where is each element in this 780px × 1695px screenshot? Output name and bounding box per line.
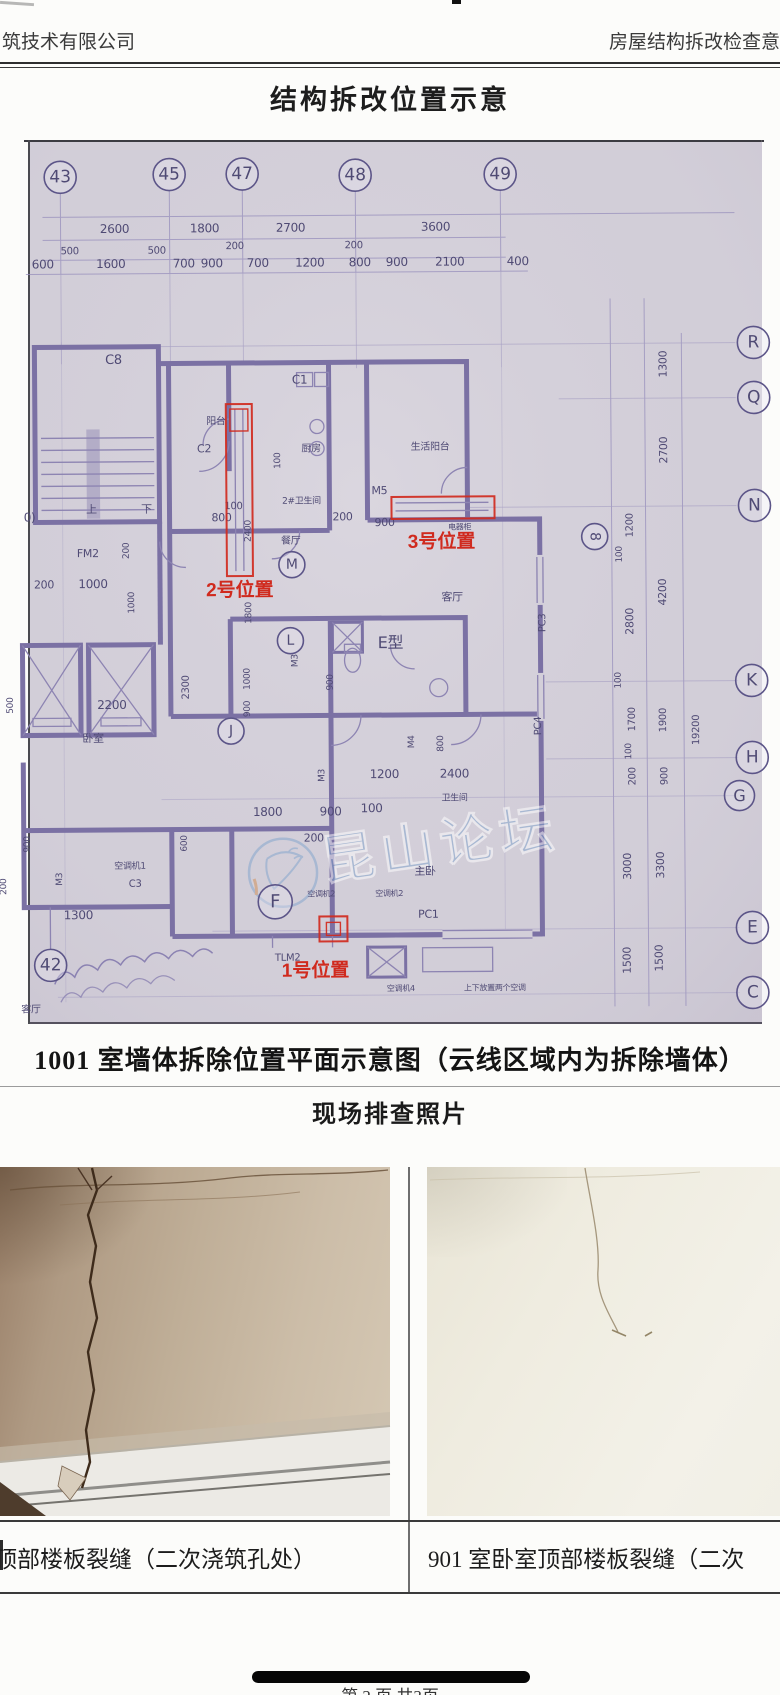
plan-label: 1300	[656, 350, 669, 377]
grid-bubble-label: 8	[587, 532, 603, 541]
plan-label: 1900	[658, 708, 669, 732]
plan-label: 1000	[243, 668, 253, 690]
plan-label: 生活阳台	[411, 440, 450, 453]
plan-label: 厨房	[301, 441, 321, 454]
floor-plan-figure: 昆山论坛 4345474849RQNKHGECMLJF8422600180027…	[0, 140, 780, 1045]
photo-shading	[0, 1167, 160, 1287]
plan-label: 200	[304, 831, 324, 844]
plan-label: 1700	[627, 707, 638, 731]
plan-label: 2300	[181, 675, 192, 699]
plan-label: 上下放置两个空调	[464, 982, 526, 992]
plan-label: 500	[61, 246, 79, 257]
plan-label: 700	[247, 256, 269, 270]
red-annotation-label: 1号位置	[282, 958, 350, 981]
plan-label: 卧室	[82, 731, 104, 745]
plan-label: 200	[332, 510, 352, 523]
plan-label: 200	[0, 878, 9, 895]
plan-label: 400	[507, 254, 529, 268]
page-title: 结构拆改位置示意	[0, 78, 780, 117]
photo-ceiling-crack-left	[0, 1167, 390, 1516]
photo-shading	[427, 1167, 567, 1257]
grid-bubble-label: 48	[344, 165, 366, 185]
header-doc-title: 房屋结构拆改检查意	[609, 27, 780, 54]
plan-label: 200	[226, 241, 244, 252]
plan-label: 客厅	[441, 589, 463, 603]
plan-label: 1000	[127, 591, 137, 613]
plan-label: 500	[148, 246, 166, 257]
grid-bubble-label: G	[733, 786, 746, 805]
plan-label: 800	[211, 511, 231, 524]
plan-label: 900	[320, 804, 342, 818]
plan-label: M3	[55, 873, 65, 886]
plan-label: FM2	[77, 547, 99, 560]
plan-label: 3000	[621, 853, 634, 880]
plan-label: 100	[361, 801, 383, 815]
grid-bubble-label: M	[286, 557, 298, 573]
plan-label: 0)	[24, 510, 36, 524]
photo-caption-right: 901 室卧室顶部楼板裂缝（二次	[428, 1540, 744, 1574]
plan-label: 100	[273, 452, 283, 469]
section-divider	[0, 1086, 780, 1087]
plan-label: 2800	[623, 608, 636, 635]
grid-bubble-label: 49	[489, 164, 511, 184]
plan-label: E型	[378, 633, 404, 652]
plan-label: PC4	[533, 717, 544, 736]
plan-label: 700	[173, 256, 195, 270]
plan-label: 客厅	[21, 1002, 41, 1015]
plan-caption: 1001 室墙体拆除位置平面示意图（云线区域内为拆除墙体）	[0, 1040, 780, 1077]
plan-label: 空调机1	[114, 860, 146, 872]
plan-label: 100	[615, 546, 625, 563]
scan-corner-artifact	[0, 1, 34, 6]
plan-label: 2600	[100, 222, 129, 236]
grid-bubble-label: Q	[747, 387, 761, 407]
red-annotation-label: 3号位置	[408, 529, 476, 552]
plan-label: 900	[23, 836, 33, 853]
grid-bubble-label: H	[746, 747, 759, 767]
plan-label: 主卧	[414, 865, 436, 878]
photo-divider	[408, 1167, 410, 1593]
plan-label: 200	[122, 542, 132, 559]
photo-caption-left: 顶部楼板裂缝（二次浇筑孔处）	[0, 1540, 316, 1574]
plan-label: 2#卫生间	[282, 494, 321, 506]
plan-label: 1500	[621, 947, 634, 974]
plan-label: 200	[34, 578, 54, 591]
plan-label: 900	[243, 700, 253, 717]
caption-left-cell: 顶部楼板裂缝（二次浇筑孔处）	[0, 1522, 408, 1592]
header-rule	[0, 62, 780, 64]
grid-bubble-label: R	[747, 332, 759, 352]
plan-label: 2200	[97, 698, 126, 712]
grid-bubble-label: C	[747, 982, 759, 1002]
plan-label: PC3	[537, 614, 548, 633]
grid-bubble-label: E	[747, 917, 758, 937]
plan-label: 2400	[440, 766, 469, 780]
plan-label: C2	[197, 442, 211, 455]
page-number: 第 2 页 共3页	[0, 1682, 780, 1695]
plan-label: 1300	[64, 908, 93, 922]
plan-label: 900	[326, 674, 336, 691]
grid-bubble-label: N	[748, 495, 761, 515]
plan-label: 3600	[421, 220, 450, 234]
scan-edge-mark	[452, 0, 461, 4]
plan-label: 2100	[435, 254, 464, 268]
plan-label: 餐厅	[281, 534, 301, 547]
plan-label: M5	[371, 484, 387, 497]
plan-label: 1200	[625, 513, 636, 537]
plan-label: C8	[105, 353, 122, 368]
caption-table-border	[0, 1592, 780, 1594]
plan-label: 600	[180, 835, 190, 852]
grid-bubble-label: 45	[158, 164, 180, 184]
photo-ceiling-crack-right	[427, 1167, 780, 1516]
plan-frame	[30, 1022, 762, 1024]
plan-label: 1800	[253, 805, 282, 819]
plan-label: 卫生间	[441, 791, 467, 803]
grid-bubble-label: K	[746, 670, 758, 690]
plan-label: 900	[386, 255, 408, 269]
plan-label: 500	[6, 697, 16, 714]
plan-label: 4200	[656, 578, 669, 605]
plan-label: 2700	[657, 436, 670, 463]
document-page: 筑技术有限公司 房屋结构拆改检查意 结构拆改位置示意	[0, 0, 780, 1695]
plan-label: 1000	[78, 577, 107, 591]
header-rule-thin	[0, 67, 780, 68]
grid-bubble-label: L	[286, 633, 294, 649]
grid-bubble-label: 43	[49, 167, 71, 187]
plan-label: 800	[349, 255, 371, 269]
plan-label: 空调机4	[387, 983, 415, 993]
caption-right-cell: 901 室卧室顶部楼板裂缝（二次	[412, 1522, 780, 1592]
grid-bubble-label: J	[228, 723, 233, 739]
plan-label: 上	[86, 503, 97, 516]
plan-label: 800	[436, 735, 446, 752]
plan-label: 1800	[244, 602, 254, 624]
plan-label: 电器柜	[448, 521, 471, 531]
plan-label: M3	[317, 769, 327, 782]
plan-label: 1500	[653, 944, 666, 971]
plan-label: 空调机2	[375, 888, 403, 898]
plan-label: 900	[201, 256, 223, 270]
plan-label: 19200	[691, 715, 702, 745]
plan-label: 1800	[190, 221, 219, 235]
plan-label: 空调机2	[307, 888, 335, 898]
plan-label: 200	[627, 767, 638, 785]
plan-label: 200	[345, 240, 363, 251]
plan-label: PC1	[418, 908, 439, 921]
plan-label: 900	[659, 767, 670, 785]
plan-label: 100	[614, 672, 624, 689]
grid-bubble-label: F	[270, 891, 281, 912]
plan-label: C1	[292, 373, 308, 387]
header-company: 筑技术有限公司	[2, 27, 135, 54]
plan-label: 3300	[654, 851, 667, 878]
plan-label: 600	[32, 257, 54, 271]
grid-bubble-label: 42	[40, 955, 62, 975]
plan-label: 1600	[96, 257, 125, 271]
section-heading: 现场排查照片	[0, 1094, 780, 1129]
plan-label: 100	[624, 743, 634, 760]
plan-label: M3	[291, 654, 301, 667]
plan-label: 阳台	[206, 414, 226, 427]
plan-label: C3	[129, 879, 142, 890]
red-annotation-label: 2号位置	[206, 578, 274, 601]
plan-label: 下	[141, 503, 152, 516]
plan-label: 2700	[276, 221, 305, 235]
grid-bubble-label: 47	[231, 164, 253, 184]
plan-label: M4	[407, 735, 417, 749]
plan-label: 1200	[295, 255, 324, 269]
plan-label: 1200	[370, 767, 399, 781]
